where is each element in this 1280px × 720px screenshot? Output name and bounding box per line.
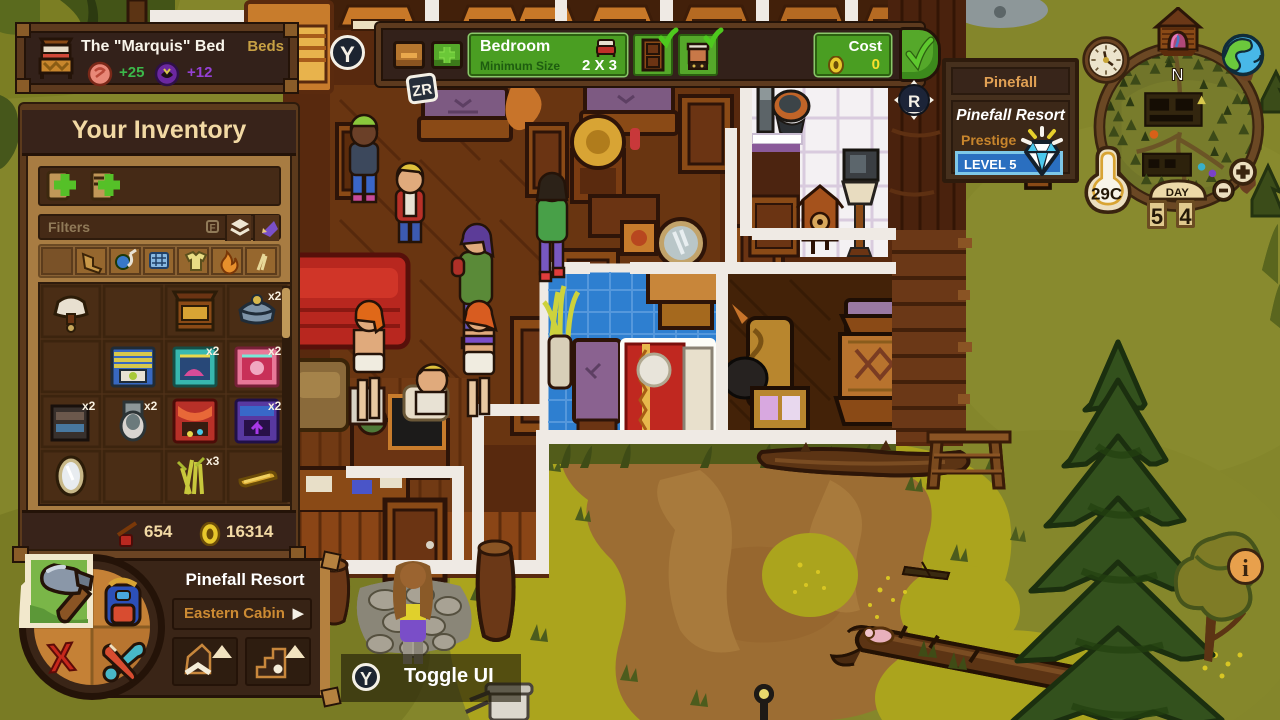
svg-text:x2: x2 <box>206 344 220 358</box>
svg-text:X: X <box>46 635 77 682</box>
svg-text:N: N <box>1171 64 1184 84</box>
svg-text:x2: x2 <box>144 399 158 413</box>
svg-text:x2: x2 <box>268 399 282 413</box>
svg-text:x2: x2 <box>268 344 282 358</box>
svg-text:R: R <box>908 92 920 111</box>
svg-text:x2: x2 <box>82 399 96 413</box>
svg-text:x3: x3 <box>206 454 220 468</box>
svg-text:x2: x2 <box>268 289 282 303</box>
svg-text:29C: 29C <box>1091 185 1122 204</box>
svg-text:DAY: DAY <box>1166 187 1189 199</box>
